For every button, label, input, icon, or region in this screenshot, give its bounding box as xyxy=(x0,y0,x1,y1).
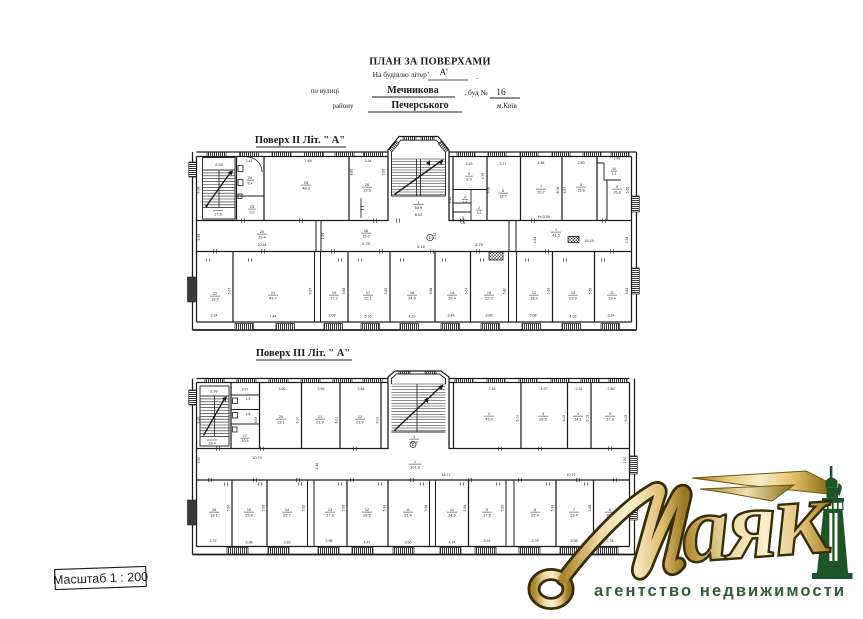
svg-text:2.34: 2.34 xyxy=(625,237,629,244)
svg-text:агентство недвижимости: агентство недвижимости xyxy=(594,582,846,600)
svg-text:1.4: 1.4 xyxy=(463,200,468,204)
svg-text:Печерського: Печерського xyxy=(391,100,448,111)
svg-text:6.01: 6.01 xyxy=(335,417,339,424)
svg-text:6.02: 6.02 xyxy=(562,415,566,422)
svg-text:10.72: 10.72 xyxy=(567,473,576,477)
svg-text:2.78: 2.78 xyxy=(607,539,614,543)
svg-text:10: 10 xyxy=(612,167,616,171)
svg-text:2.50: 2.50 xyxy=(197,457,201,464)
svg-text:8.9: 8.9 xyxy=(466,177,471,181)
svg-text:Поверх III Літ. " А": Поверх III Літ. " А" xyxy=(256,348,350,359)
svg-text:9: 9 xyxy=(486,508,488,512)
svg-text:16: 16 xyxy=(212,508,216,512)
svg-text:1.9: 1.9 xyxy=(246,397,251,401)
svg-text:6.53: 6.53 xyxy=(254,417,258,423)
svg-text:17: 17 xyxy=(243,434,247,438)
svg-text:3.98: 3.98 xyxy=(571,539,578,543)
svg-text:9: 9 xyxy=(616,185,618,189)
svg-text:19.0: 19.0 xyxy=(211,297,218,301)
svg-text:5.92: 5.92 xyxy=(588,505,592,512)
svg-text:2.79: 2.79 xyxy=(481,173,485,180)
svg-text:19: 19 xyxy=(332,291,336,295)
svg-text:3.83: 3.83 xyxy=(284,541,291,545)
svg-text:1: 1 xyxy=(555,228,557,232)
svg-text:15.8: 15.8 xyxy=(613,190,620,194)
svg-text:14: 14 xyxy=(285,508,289,512)
svg-text:2.80: 2.80 xyxy=(578,161,585,165)
svg-text:8.79: 8.79 xyxy=(475,243,482,247)
svg-text:18.71: 18.71 xyxy=(442,473,451,477)
svg-text:3.48: 3.48 xyxy=(448,314,455,318)
svg-text:6.01: 6.01 xyxy=(516,415,520,422)
svg-text:7.16: 7.16 xyxy=(489,387,496,391)
svg-text:22: 22 xyxy=(213,292,217,296)
svg-text:6.01: 6.01 xyxy=(376,417,380,424)
svg-text:20: 20 xyxy=(260,230,264,234)
svg-text:15.0: 15.0 xyxy=(362,234,369,238)
svg-text:5.68: 5.68 xyxy=(429,288,433,295)
svg-text:20.7: 20.7 xyxy=(537,190,544,194)
svg-text:14.1: 14.1 xyxy=(574,417,581,421)
svg-text:5.89: 5.89 xyxy=(384,288,388,295)
svg-text:району: району xyxy=(332,102,354,110)
svg-text:43.7: 43.7 xyxy=(269,296,276,300)
svg-text:20: 20 xyxy=(279,415,283,419)
svg-text:5.82: 5.82 xyxy=(625,288,629,295)
svg-text:Н=3.50: Н=3.50 xyxy=(538,215,550,219)
svg-text:41.5: 41.5 xyxy=(552,233,559,237)
svg-text:101.8: 101.8 xyxy=(410,465,420,469)
svg-text:8.4: 8.4 xyxy=(247,181,252,185)
svg-text:53.9: 53.9 xyxy=(415,206,422,210)
svg-text:4.54: 4.54 xyxy=(538,161,545,165)
svg-text:6.02: 6.02 xyxy=(624,415,628,422)
svg-text:5.67: 5.67 xyxy=(228,288,232,295)
svg-text:21.9: 21.9 xyxy=(316,420,323,424)
svg-text:.: . xyxy=(476,72,478,81)
svg-text:2.33: 2.33 xyxy=(433,233,437,240)
svg-text:11: 11 xyxy=(406,508,410,512)
svg-text:23.8: 23.8 xyxy=(245,513,252,517)
svg-text:13: 13 xyxy=(571,291,575,295)
svg-text:по вулиці: по вулиці xyxy=(311,87,339,95)
svg-text:22.7: 22.7 xyxy=(283,513,290,517)
svg-text:26: 26 xyxy=(365,183,369,187)
svg-text:6: 6 xyxy=(502,189,504,193)
svg-text:Мечникова: Мечникова xyxy=(387,85,438,96)
svg-text:На будівлю літер’: На будівлю літер’ xyxy=(373,70,430,79)
svg-text:24: 24 xyxy=(248,176,252,180)
svg-text:2.86: 2.86 xyxy=(608,387,615,391)
svg-text:5.67: 5.67 xyxy=(465,288,469,295)
svg-text:Поверх II Літ. " А": Поверх II Літ. " А" xyxy=(255,135,345,146)
svg-text:15.8: 15.8 xyxy=(577,188,584,192)
svg-text:8.43: 8.43 xyxy=(448,197,452,204)
svg-text:19.1: 19.1 xyxy=(210,513,217,517)
svg-text:6.00: 6.00 xyxy=(296,417,300,424)
svg-text:2.98: 2.98 xyxy=(326,539,333,543)
svg-text:8.85: 8.85 xyxy=(350,169,354,176)
svg-text:5.65: 5.65 xyxy=(589,288,593,295)
svg-text:15: 15 xyxy=(247,508,251,512)
svg-text:43.0: 43.0 xyxy=(485,417,492,421)
svg-text:6.08: 6.08 xyxy=(197,187,201,194)
svg-text:3.64: 3.64 xyxy=(358,387,365,391)
svg-text:23: 23 xyxy=(250,205,254,209)
svg-text:16: 16 xyxy=(410,291,414,295)
svg-text:ПЛАН ЗА ПОВЕРХАМИ: ПЛАН ЗА ПОВЕРХАМИ xyxy=(369,57,491,68)
svg-text:23.4: 23.4 xyxy=(570,513,577,517)
svg-text:2.09: 2.09 xyxy=(329,314,336,318)
svg-text:А’: А’ xyxy=(440,67,449,77)
svg-text:6.66: 6.66 xyxy=(487,187,491,194)
svg-text:5.93: 5.93 xyxy=(501,505,505,512)
svg-text:22.1: 22.1 xyxy=(364,296,371,300)
svg-text:3.34: 3.34 xyxy=(608,314,615,318)
svg-text:5.94: 5.94 xyxy=(463,505,467,512)
svg-text:1.1: 1.1 xyxy=(612,172,617,176)
svg-text:19.5: 19.5 xyxy=(363,188,370,192)
svg-text:22.1: 22.1 xyxy=(277,420,284,424)
svg-text:3.66: 3.66 xyxy=(279,387,286,391)
svg-text:2.48: 2.48 xyxy=(315,463,319,470)
svg-text:2: 2 xyxy=(488,412,490,416)
svg-text:2.72: 2.72 xyxy=(210,539,217,543)
svg-text:3.17: 3.17 xyxy=(500,162,507,166)
svg-text:22.0: 22.0 xyxy=(485,296,492,300)
svg-text:4.47: 4.47 xyxy=(364,541,371,545)
svg-text:15: 15 xyxy=(487,291,491,295)
svg-text:4.2: 4.2 xyxy=(477,211,482,215)
svg-text:7.69: 7.69 xyxy=(304,159,311,163)
svg-text:5: 5 xyxy=(609,412,611,416)
svg-text:5.76: 5.76 xyxy=(365,315,372,319)
svg-text:5.92: 5.92 xyxy=(302,505,306,512)
svg-text:5.93: 5.93 xyxy=(383,505,387,512)
svg-text:2: 2 xyxy=(478,206,480,210)
svg-text:6.15: 6.15 xyxy=(197,417,201,424)
svg-text:6.65: 6.65 xyxy=(626,187,630,194)
svg-text:24.5: 24.5 xyxy=(448,513,455,517)
svg-text:2.34: 2.34 xyxy=(576,387,583,391)
svg-text:, буд №: , буд № xyxy=(464,88,487,97)
svg-text:5.94: 5.94 xyxy=(424,505,428,512)
svg-text:19.4: 19.4 xyxy=(608,296,615,300)
svg-text:28.5: 28.5 xyxy=(363,513,370,517)
svg-text:5.65: 5.65 xyxy=(382,169,386,176)
svg-text:2.34: 2.34 xyxy=(533,237,537,244)
svg-text:2.25: 2.25 xyxy=(321,233,325,240)
svg-text:8: 8 xyxy=(534,508,536,512)
svg-text:5.93: 5.93 xyxy=(342,505,346,512)
svg-text:2.41: 2.41 xyxy=(246,159,253,163)
svg-text:4.02: 4.02 xyxy=(570,315,577,319)
svg-text:3.34: 3.34 xyxy=(365,159,372,163)
svg-text:7: 7 xyxy=(540,185,542,189)
svg-text:14: 14 xyxy=(450,291,454,295)
svg-text:2.95: 2.95 xyxy=(215,163,222,167)
svg-text:3.24: 3.24 xyxy=(211,314,218,318)
svg-text:7.44: 7.44 xyxy=(270,315,277,319)
svg-text:17.9: 17.9 xyxy=(606,417,613,421)
svg-text:3.91: 3.91 xyxy=(484,539,491,543)
svg-text:17.8: 17.8 xyxy=(483,513,490,517)
svg-text:1.8: 1.8 xyxy=(246,412,251,416)
svg-text:2.35: 2.35 xyxy=(197,234,201,241)
svg-text:18.7: 18.7 xyxy=(499,194,506,198)
svg-text:6.78: 6.78 xyxy=(362,242,369,246)
svg-text:21: 21 xyxy=(271,291,275,295)
svg-text:19.29: 19.29 xyxy=(584,239,594,243)
svg-text:2.48: 2.48 xyxy=(614,157,621,161)
svg-text:21: 21 xyxy=(318,415,322,419)
svg-text:1: 1 xyxy=(417,201,419,205)
svg-text:29.4: 29.4 xyxy=(258,235,265,239)
svg-text:1: 1 xyxy=(414,460,416,464)
svg-text:1: 1 xyxy=(413,435,415,439)
svg-text:25: 25 xyxy=(304,180,309,185)
svg-text:4: 4 xyxy=(577,412,579,416)
svg-text:5.93: 5.93 xyxy=(227,505,231,512)
svg-text:5.93: 5.93 xyxy=(551,505,555,512)
svg-text:6: 6 xyxy=(609,508,611,512)
svg-text:18.4: 18.4 xyxy=(208,442,215,446)
svg-text:17.3: 17.3 xyxy=(330,296,337,300)
svg-text:22: 22 xyxy=(358,415,362,419)
svg-text:4: 4 xyxy=(464,196,466,200)
svg-text:3.98: 3.98 xyxy=(246,541,253,545)
svg-text:3.59: 3.59 xyxy=(318,387,325,391)
svg-text:22.4: 22.4 xyxy=(531,513,538,517)
svg-text:3: 3 xyxy=(542,412,544,416)
svg-text:3.60: 3.60 xyxy=(405,541,412,545)
svg-text:12: 12 xyxy=(532,291,536,295)
svg-text:13: 13 xyxy=(328,508,332,512)
svg-text:3.08: 3.08 xyxy=(530,314,537,318)
svg-text:4.37: 4.37 xyxy=(541,387,548,391)
svg-text:5.15: 5.15 xyxy=(417,245,424,249)
svg-text:20.4: 20.4 xyxy=(448,296,455,300)
svg-text:28.3: 28.3 xyxy=(539,417,546,421)
svg-text:3.88: 3.88 xyxy=(486,314,493,318)
svg-text:10.74: 10.74 xyxy=(252,456,262,460)
svg-text:3.23: 3.23 xyxy=(466,162,473,166)
svg-text:10.5: 10.5 xyxy=(242,439,249,443)
svg-text:4.74: 4.74 xyxy=(449,541,456,545)
svg-text:2.57: 2.57 xyxy=(242,388,249,392)
svg-text:12: 12 xyxy=(365,508,369,512)
svg-text:5.93: 5.93 xyxy=(262,505,266,512)
svg-text:4.19: 4.19 xyxy=(409,315,416,319)
svg-text:6.87: 6.87 xyxy=(563,187,567,194)
svg-text:21.4: 21.4 xyxy=(404,513,411,517)
svg-text:5.80: 5.80 xyxy=(503,288,507,295)
svg-text:5.68: 5.68 xyxy=(342,288,346,295)
svg-text:16: 16 xyxy=(496,88,506,98)
svg-text:8: 8 xyxy=(580,183,582,187)
svg-text:21.9: 21.9 xyxy=(356,420,363,424)
svg-text:10.81: 10.81 xyxy=(257,243,267,247)
svg-text:Б: Б xyxy=(429,235,432,240)
svg-text:8.02: 8.02 xyxy=(415,213,422,217)
svg-text:10: 10 xyxy=(450,508,454,512)
svg-text:23.9: 23.9 xyxy=(569,296,576,300)
svg-text:м.Київ: м.Київ xyxy=(497,102,518,110)
svg-text:6.87: 6.87 xyxy=(309,288,313,295)
svg-text:6.03: 6.03 xyxy=(586,415,590,422)
svg-text:9.2: 9.2 xyxy=(249,210,254,214)
svg-text:5: 5 xyxy=(468,172,470,176)
svg-text:48.3: 48.3 xyxy=(302,186,311,191)
svg-text:18.0: 18.0 xyxy=(530,296,537,300)
svg-text:17.8: 17.8 xyxy=(326,513,333,517)
svg-text:5.63: 5.63 xyxy=(547,288,551,295)
svg-text:17: 17 xyxy=(366,291,370,295)
svg-text:17.6: 17.6 xyxy=(214,213,221,217)
svg-text:18: 18 xyxy=(364,229,368,233)
svg-text:24.9: 24.9 xyxy=(408,296,415,300)
svg-text:2.99: 2.99 xyxy=(210,390,217,394)
svg-text:11: 11 xyxy=(610,291,614,295)
svg-text:3.78: 3.78 xyxy=(532,539,539,543)
svg-text:7: 7 xyxy=(573,508,575,512)
svg-text:8.06: 8.06 xyxy=(556,187,560,194)
svg-text:2.50: 2.50 xyxy=(623,457,627,464)
